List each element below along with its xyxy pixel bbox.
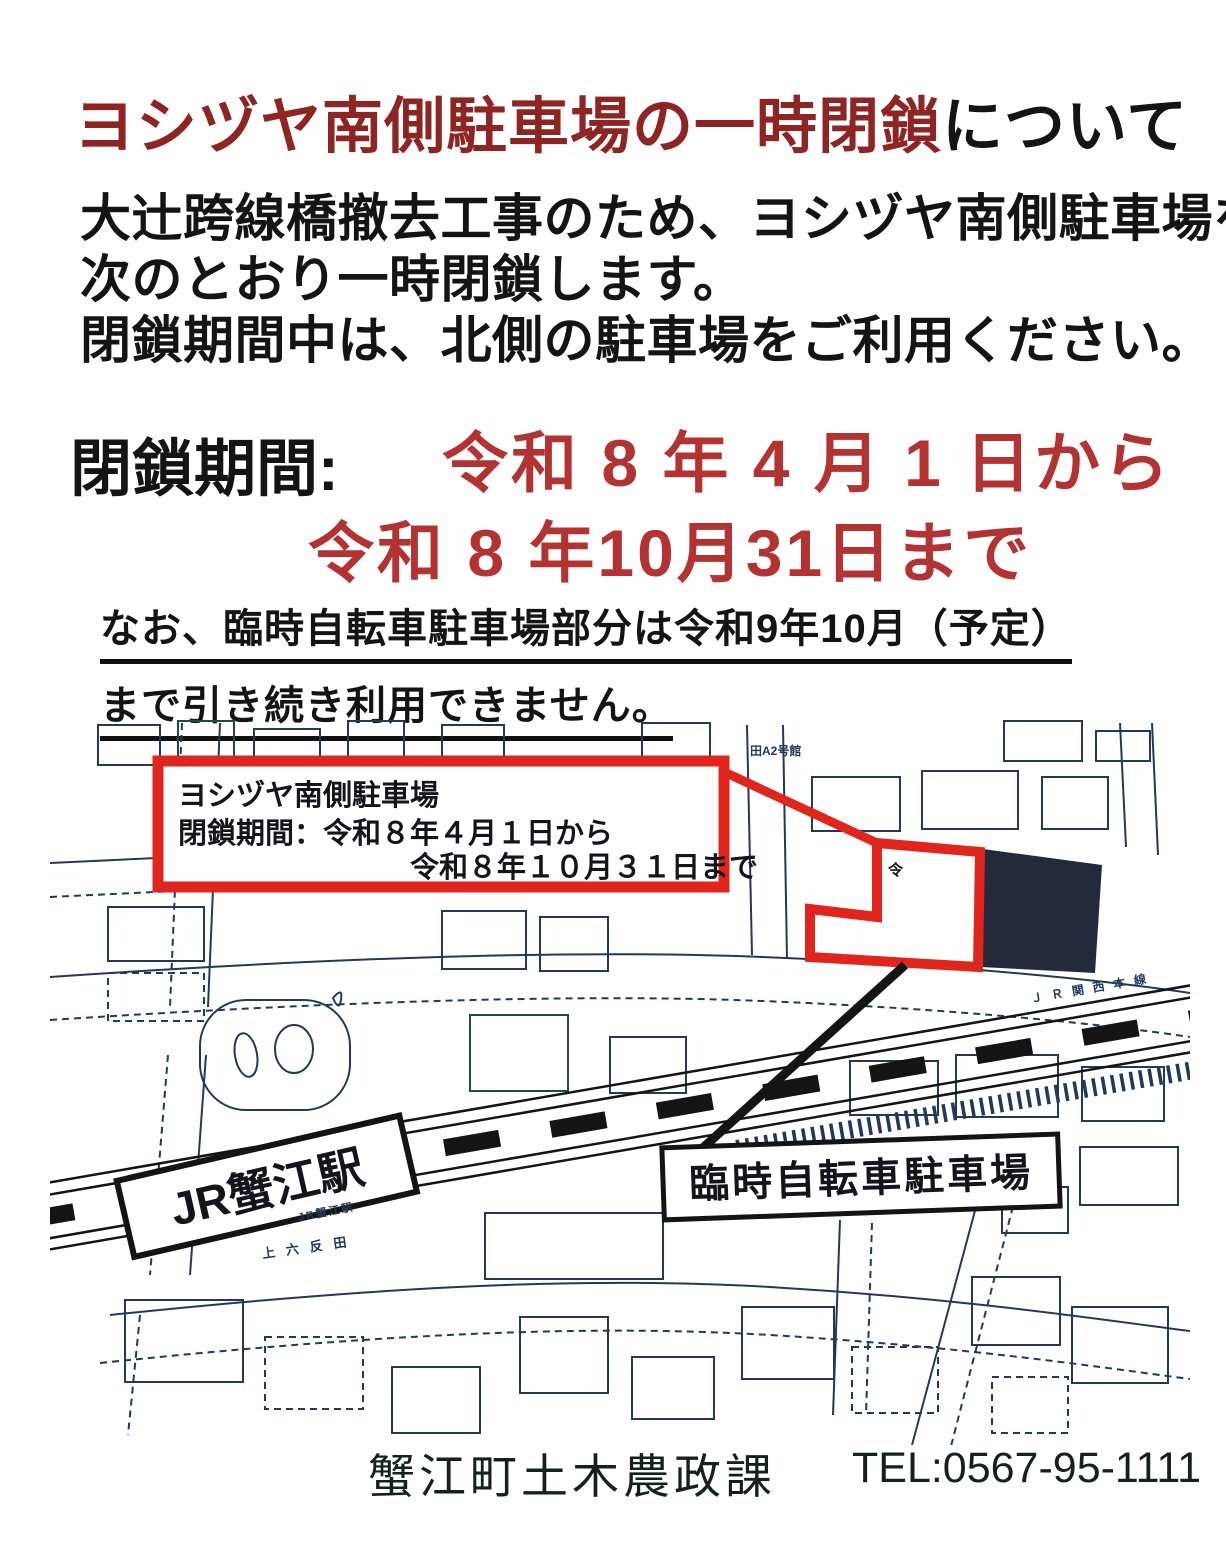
- building-small-label: 田A2号館: [750, 743, 801, 758]
- footer: 蟹江町土木農政課 TEL:0567-95-1111: [0, 1438, 1226, 1518]
- map-canvas: ＪＲ関西本線 令 ヨシヅヤ南側駐車場 閉鎖期間：令和８年４月１日から 令和８年１…: [50, 715, 1190, 1445]
- closure-period-from: 令和 8 年 4 月 1 日から: [442, 410, 1172, 506]
- closure-period: 閉鎖期間: 令和 8 年 4 月 1 日から 令和 8 年10月31日まで: [70, 408, 1210, 588]
- body-line-3: 閉鎖期間中は、北側の駐車場をご利用ください。: [80, 310, 1226, 371]
- area-small-label: 上六反田: [261, 1233, 358, 1261]
- closure-period-label: 閉鎖期間:: [70, 418, 339, 508]
- callout-leader-line: [720, 770, 877, 843]
- station-label-box: JR蟹江駅: [117, 1116, 417, 1257]
- bicycle-lot-area: [981, 849, 1102, 973]
- department-name: 蟹江町土木農政課: [368, 1438, 776, 1507]
- phone-number: TEL:0567-95-1111: [852, 1444, 1201, 1493]
- page-title: ヨシヅヤ南側駐車場の一時閉鎖について: [74, 76, 1188, 165]
- location-map: ＪＲ関西本線 令 ヨシヅヤ南側駐車場 閉鎖期間：令和８年４月１日から 令和８年１…: [50, 715, 1190, 1445]
- title-red-part: ヨシヅヤ南側駐車場の一時閉鎖: [74, 92, 942, 160]
- body-line-2: 次のとおり一時閉鎖します。: [80, 249, 1226, 310]
- bicycle-label-box: 臨時自転車駐車場: [662, 1134, 1060, 1220]
- callout-line-1: ヨシヅヤ南側駐車場: [178, 778, 439, 812]
- closure-callout: ヨシヅヤ南側駐車場 閉鎖期間：令和８年４月１日から 令和８年１０月３１日まで: [158, 761, 758, 887]
- notice-page: ヨシヅヤ南側駐車場の一時閉鎖について 大辻跨線橋撤去工事のため、ヨシヅヤ南側駐車…: [0, 0, 1226, 1554]
- callout-line-2: 閉鎖期間：令和８年４月１日から: [178, 816, 613, 850]
- body-paragraph: 大辻跨線橋撤去工事のため、ヨシヅヤ南側駐車場を 次のとおり一時閉鎖します。 閉鎖…: [80, 188, 1226, 372]
- callout-line-3: 令和８年１０月３１日まで: [410, 850, 758, 884]
- bicycle-note-line-1: なお、臨時自転車駐車場部分は令和9年10月（予定）: [100, 596, 1072, 664]
- closure-period-to: 令和 8 年10月31日まで: [308, 500, 1032, 596]
- body-line-1: 大辻跨線橋撤去工事のため、ヨシヅヤ南側駐車場を: [80, 188, 1226, 249]
- rail-line-label: ＪＲ関西本線: [1029, 969, 1156, 1005]
- lot-mark: 令: [888, 861, 904, 879]
- title-black-part: について: [942, 92, 1188, 160]
